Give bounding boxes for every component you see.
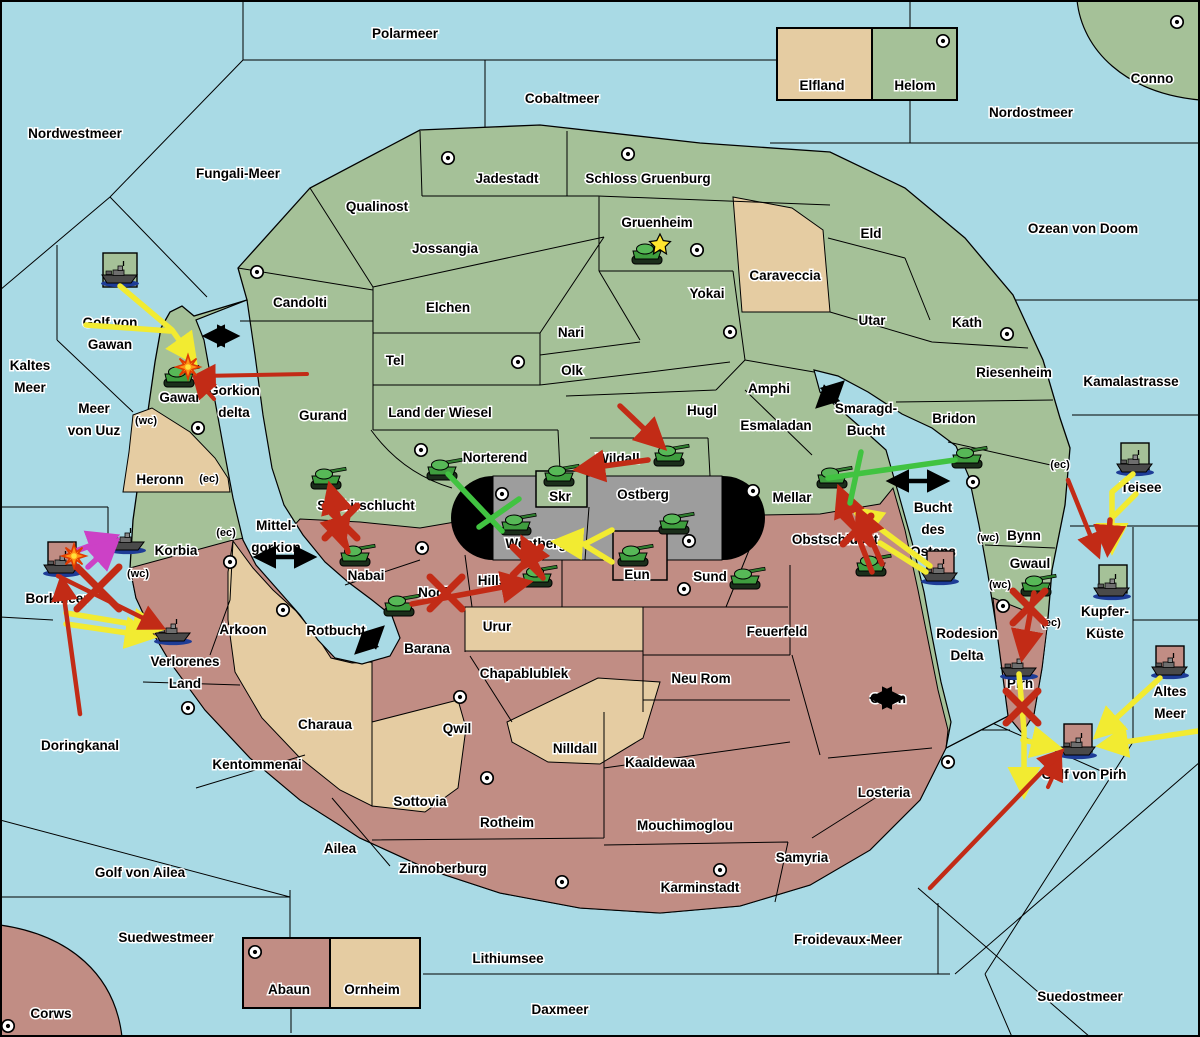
territory-label-helom: Helom [894, 78, 935, 93]
territory-label-candolti: Candolti [273, 295, 327, 310]
territory-label-norterend: Norterend [463, 450, 528, 465]
territory-label-nabai: Nabai [348, 568, 385, 583]
sea-label-suedostmeer: Suedostmeer [1037, 989, 1123, 1004]
territory-label-rotheim: Rotheim [480, 815, 534, 830]
city-icon [496, 488, 508, 500]
territory-label-sottovia: Sottovia [393, 794, 447, 809]
city-icon [997, 600, 1009, 612]
territory-label-qualinost: Qualinost [346, 199, 409, 214]
territory-label-yokai: Yokai [689, 286, 724, 301]
territory-label-qwil: Qwil [443, 721, 472, 736]
city-icon [277, 604, 289, 616]
territory-label-kaaldewaa: Kaaldewaa [625, 755, 695, 770]
territory-label-kentommenai: Kentommenai [212, 757, 301, 772]
city-icon [1001, 328, 1013, 340]
territory-label-conno: Conno [1131, 71, 1174, 86]
territory-label-eun: Eun [624, 567, 650, 582]
legend-abaun-ornheim [243, 938, 420, 1008]
sea-label-kamalastrasse: Kamalastrasse [1083, 374, 1179, 389]
game-map[interactable]: PolarmeerCobaltmeerNordwestmeerNordostme… [0, 0, 1200, 1037]
territory-label-skr: Skr [549, 489, 572, 504]
city-icon [678, 583, 690, 595]
city-icon [683, 535, 695, 547]
red-attack-arrow [199, 374, 307, 376]
explosion-icon [176, 355, 200, 379]
territory-label-ailea: Ailea [324, 841, 357, 856]
city-icon [415, 444, 427, 456]
sea-label-lithiumsee: Lithiumsee [472, 951, 544, 966]
sea-label-nordwestmeer: Nordwestmeer [28, 126, 123, 141]
sea-label-golf-von-ailea: Golf von Ailea [95, 865, 186, 880]
territory-label-abaun: Abaun [268, 982, 310, 997]
territory-label-olk: Olk [561, 363, 583, 378]
connection-label-ec: (ec) [1050, 459, 1070, 471]
sea-label-suedwestmeer: Suedwestmeer [118, 930, 214, 945]
sea-label-doringkanal: Doringkanal [41, 738, 119, 753]
territory-label-neu-rom: Neu Rom [671, 671, 730, 686]
territory-label-karminstadt: Karminstadt [661, 880, 740, 895]
city-icon [747, 485, 759, 497]
territory-label-elfland: Elfland [799, 78, 844, 93]
territory-label-ostberg: Ostberg [617, 487, 669, 502]
connection-label-wc: (wc) [135, 415, 157, 427]
connection-label-ec: (ec) [216, 527, 236, 539]
territory-label-utar: Utar [858, 313, 886, 328]
territory-label-ornheim: Ornheim [344, 982, 400, 997]
territory-label-hugl: Hugl [687, 403, 717, 418]
city-icon [251, 266, 263, 278]
territory-label-jossangia: Jossangia [412, 241, 479, 256]
city-icon [249, 946, 261, 958]
territory-label-mouchimoglou: Mouchimoglou [637, 818, 733, 833]
territory-label-bynn: Bynn [1007, 528, 1041, 543]
sea-label-nordostmeer: Nordostmeer [989, 105, 1074, 120]
territory-label-sund: Sund [693, 569, 727, 584]
territory-label-gwaul: Gwaul [1010, 556, 1051, 571]
sea-label-ozean-von-doom: Ozean von Doom [1028, 221, 1138, 236]
city-icon [967, 476, 979, 488]
territory-label-chapablublek: Chapablublek [480, 666, 569, 681]
explosion-icon [62, 544, 86, 568]
territory-label-jadestadt: Jadestadt [475, 171, 539, 186]
city-icon [1171, 16, 1183, 28]
territory-label-riesenheim: Riesenheim [976, 365, 1052, 380]
sea-label-froidevaux-meer: Froidevaux-Meer [794, 932, 903, 947]
territory-label-bridon: Bridon [932, 411, 976, 426]
territory-label-nilldall: Nilldall [553, 741, 597, 756]
city-icon [481, 772, 493, 784]
territory-label-korbia: Korbia [155, 543, 198, 558]
connection-label-wc: (wc) [977, 532, 999, 544]
city-icon [182, 702, 194, 714]
territory-label-gurand: Gurand [299, 408, 347, 423]
territory-label-tel: Tel [386, 353, 405, 368]
city-icon [2, 1020, 14, 1032]
city-icon [724, 326, 736, 338]
territory-label-feuerfeld: Feuerfeld [747, 624, 808, 639]
territory-label-amphi: Amphi [748, 381, 790, 396]
territory-label-heronn: Heronn [136, 472, 183, 487]
territory-label-urur: Urur [483, 619, 512, 634]
territory-label-land-der-wiesel: Land der Wiesel [388, 405, 491, 420]
sea-label-daxmeer: Daxmeer [531, 1002, 589, 1017]
territory-label-corws: Corws [30, 1006, 71, 1021]
territory-label-barana: Barana [404, 641, 450, 656]
city-icon [937, 35, 949, 47]
city-icon [622, 148, 634, 160]
territory-label-nari: Nari [558, 325, 584, 340]
territory-label-schloss-gruenburg: Schloss Gruenburg [585, 171, 710, 186]
city-icon [224, 556, 236, 568]
red-attack-arrow [1108, 520, 1110, 548]
city-icon [442, 152, 454, 164]
territory-label-zinnoberburg: Zinnoberburg [399, 861, 487, 876]
territory-label-esmaladan: Esmaladan [740, 418, 811, 433]
city-icon [942, 756, 954, 768]
city-icon [691, 244, 703, 256]
territory-label-losteria: Losteria [858, 785, 911, 800]
connection-label-ec: (ec) [199, 473, 219, 485]
sea-label-cobaltmeer: Cobaltmeer [525, 91, 600, 106]
city-icon [512, 356, 524, 368]
connection-label-wc: (wc) [989, 579, 1011, 591]
territory-label-samyria: Samyria [776, 850, 829, 865]
city-icon [714, 864, 726, 876]
city-icon [556, 876, 568, 888]
territory-label-kath: Kath [952, 315, 982, 330]
city-icon [416, 542, 428, 554]
city-icon [454, 691, 466, 703]
territory-label-gruenheim: Gruenheim [621, 215, 692, 230]
territory-label-caraveccia: Caraveccia [749, 268, 821, 283]
connection-label-wc: (wc) [127, 568, 149, 580]
territory-label-eld: Eld [860, 226, 881, 241]
territory-label-gawar: Gawar [159, 390, 201, 405]
territory-label-elchen: Elchen [426, 300, 470, 315]
territory-label-mellar: Mellar [772, 490, 812, 505]
sea-label-polarmeer: Polarmeer [372, 26, 439, 41]
territory-label-arkoon: Arkoon [219, 622, 266, 637]
sea-label-fungali-meer: Fungali-Meer [196, 166, 281, 181]
city-icon [192, 422, 204, 434]
sea-label-rotbucht: Rotbucht [306, 623, 366, 638]
territory-label-charaua: Charaua [298, 717, 353, 732]
